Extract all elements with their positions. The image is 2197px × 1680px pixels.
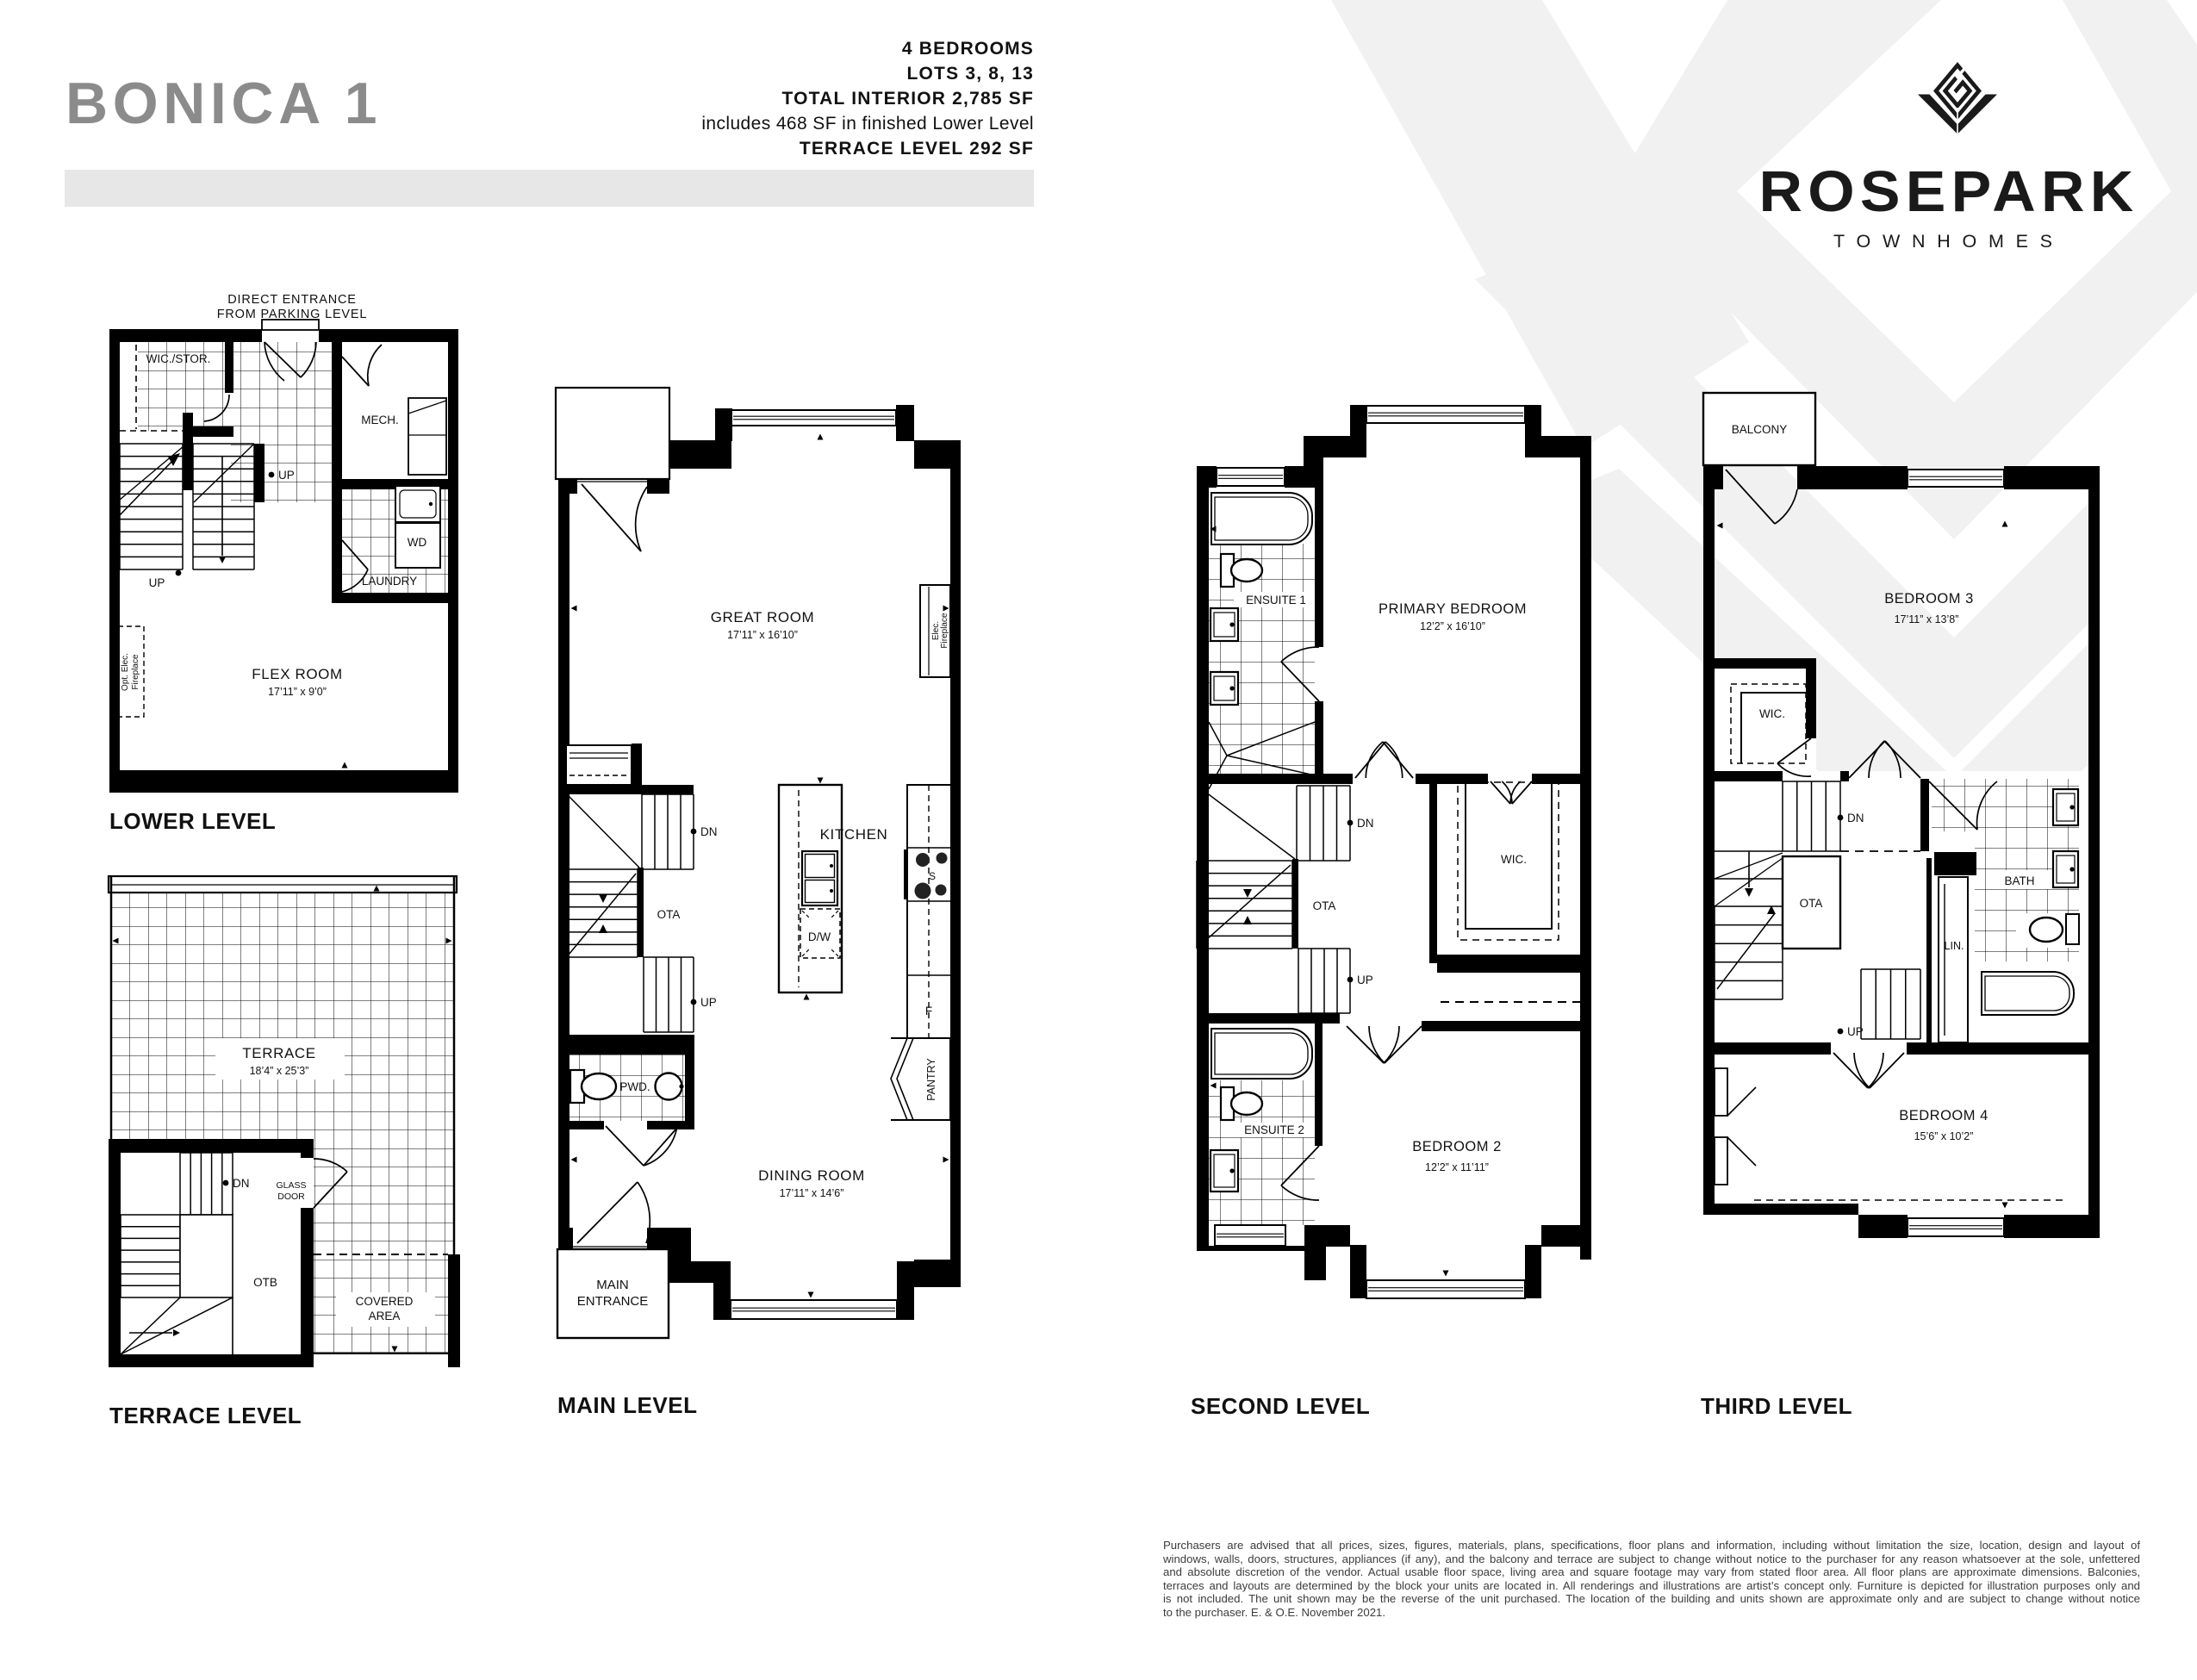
svg-text:WIC.: WIC. bbox=[1759, 707, 1785, 720]
svg-text:17’11” x 16’10”: 17’11” x 16’10” bbox=[727, 629, 798, 641]
svg-text:TERRACE: TERRACE bbox=[242, 1045, 315, 1061]
svg-text:FLEX ROOM: FLEX ROOM bbox=[252, 666, 343, 682]
svg-text:D/W: D/W bbox=[808, 930, 831, 943]
svg-text:17’11” x 13’8”: 17’11” x 13’8” bbox=[1895, 613, 1959, 625]
svg-text:4 BEDROOMS: 4 BEDROOMS bbox=[902, 39, 1034, 59]
svg-text:MAIN LEVEL: MAIN LEVEL bbox=[557, 1392, 697, 1418]
svg-text:Opt. Elec.: Opt. Elec. bbox=[121, 653, 130, 691]
svg-text:DIRECT ENTRANCE: DIRECT ENTRANCE bbox=[227, 293, 357, 307]
svg-text:BONICA 1: BONICA 1 bbox=[65, 71, 382, 136]
svg-text:WD: WD bbox=[408, 536, 427, 549]
svg-text:AREA: AREA bbox=[369, 1310, 401, 1322]
svg-text:PRIMARY BEDROOM: PRIMARY BEDROOM bbox=[1379, 601, 1527, 617]
svg-text:UP: UP bbox=[278, 469, 295, 482]
svg-text:DINING ROOM: DINING ROOM bbox=[758, 1167, 865, 1184]
svg-text:UP: UP bbox=[149, 576, 165, 589]
svg-text:DOOR: DOOR bbox=[277, 1192, 305, 1202]
svg-text:WIC./STOR.: WIC./STOR. bbox=[146, 352, 211, 365]
svg-text:ENSUITE 1: ENSUITE 1 bbox=[1246, 594, 1306, 607]
svg-text:UP: UP bbox=[1357, 974, 1373, 986]
svg-text:BATH: BATH bbox=[2004, 874, 2034, 887]
svg-text:OTB: OTB bbox=[253, 1276, 277, 1289]
svg-text:12’2” x 11’11”: 12’2” x 11’11” bbox=[1425, 1161, 1489, 1173]
svg-text:MECH.: MECH. bbox=[361, 414, 399, 426]
svg-text:LIN.: LIN. bbox=[1945, 940, 1964, 952]
svg-text:F: F bbox=[925, 1005, 932, 1017]
svg-text:LAUNDRY: LAUNDRY bbox=[362, 575, 417, 588]
svg-text:PANTRY: PANTRY bbox=[925, 1058, 937, 1101]
svg-text:TERRACE LEVEL: TERRACE LEVEL bbox=[109, 1403, 302, 1428]
svg-text:BEDROOM 3: BEDROOM 3 bbox=[1884, 591, 1974, 607]
svg-text:ENSUITE 2: ENSUITE 2 bbox=[1244, 1123, 1304, 1136]
svg-text:TOTAL INTERIOR 2,785 SF: TOTAL INTERIOR 2,785 SF bbox=[782, 89, 1035, 109]
svg-text:GREAT ROOM: GREAT ROOM bbox=[711, 609, 815, 625]
svg-text:WIC.: WIC. bbox=[1501, 853, 1527, 866]
svg-text:UP: UP bbox=[700, 996, 717, 1009]
svg-text:TOWNHOMES: TOWNHOMES bbox=[1833, 231, 2064, 252]
svg-text:BALCONY: BALCONY bbox=[1732, 423, 1788, 436]
svg-text:LOTS 3, 8, 13: LOTS 3, 8, 13 bbox=[907, 64, 1035, 84]
svg-text:DN: DN bbox=[1847, 812, 1864, 824]
svg-text:ENTRANCE: ENTRANCE bbox=[577, 1294, 649, 1309]
svg-text:BEDROOM 2: BEDROOM 2 bbox=[1412, 1139, 1502, 1154]
svg-text:ROSEPARK: ROSEPARK bbox=[1759, 159, 2139, 224]
svg-text:DN: DN bbox=[700, 825, 718, 838]
svg-text:18’4” x 25’3”: 18’4” x 25’3” bbox=[250, 1065, 309, 1077]
svg-text:SECOND LEVEL: SECOND LEVEL bbox=[1191, 1393, 1370, 1419]
svg-text:Fireplace: Fireplace bbox=[940, 613, 949, 649]
svg-text:GLASS: GLASS bbox=[276, 1180, 306, 1191]
svg-text:DN: DN bbox=[1357, 817, 1374, 830]
svg-text:KITCHEN: KITCHEN bbox=[820, 826, 888, 843]
svg-text:OTA: OTA bbox=[1800, 897, 1823, 910]
svg-text:DN: DN bbox=[233, 1177, 250, 1190]
svg-text:LOWER LEVEL: LOWER LEVEL bbox=[109, 808, 276, 834]
svg-text:Fireplace: Fireplace bbox=[131, 654, 140, 690]
svg-text:17’11” x 14’6”: 17’11” x 14’6” bbox=[780, 1187, 844, 1199]
svg-text:15’6” x 10’2”: 15’6” x 10’2” bbox=[1914, 1130, 1974, 1142]
svg-text:THIRD LEVEL: THIRD LEVEL bbox=[1701, 1393, 1852, 1419]
svg-text:UP: UP bbox=[1847, 1025, 1864, 1038]
svg-text:BEDROOM 4: BEDROOM 4 bbox=[1899, 1108, 1989, 1123]
svg-text:S: S bbox=[929, 870, 936, 882]
svg-text:MAIN: MAIN bbox=[596, 1278, 629, 1292]
svg-text:12’2” x 16’10”: 12’2” x 16’10” bbox=[1420, 620, 1485, 632]
svg-text:TERRACE LEVEL 292 SF: TERRACE LEVEL 292 SF bbox=[800, 139, 1034, 159]
svg-text:17’11” x 9’0”: 17’11” x 9’0” bbox=[268, 686, 327, 698]
svg-text:includes 468 SF in finished Lo: includes 468 SF in finished Lower Level bbox=[701, 114, 1034, 134]
svg-text:COVERED: COVERED bbox=[356, 1295, 414, 1308]
svg-text:OTA: OTA bbox=[657, 908, 681, 921]
svg-text:PWD.: PWD. bbox=[619, 1080, 650, 1093]
svg-text:OTA: OTA bbox=[1313, 899, 1336, 912]
